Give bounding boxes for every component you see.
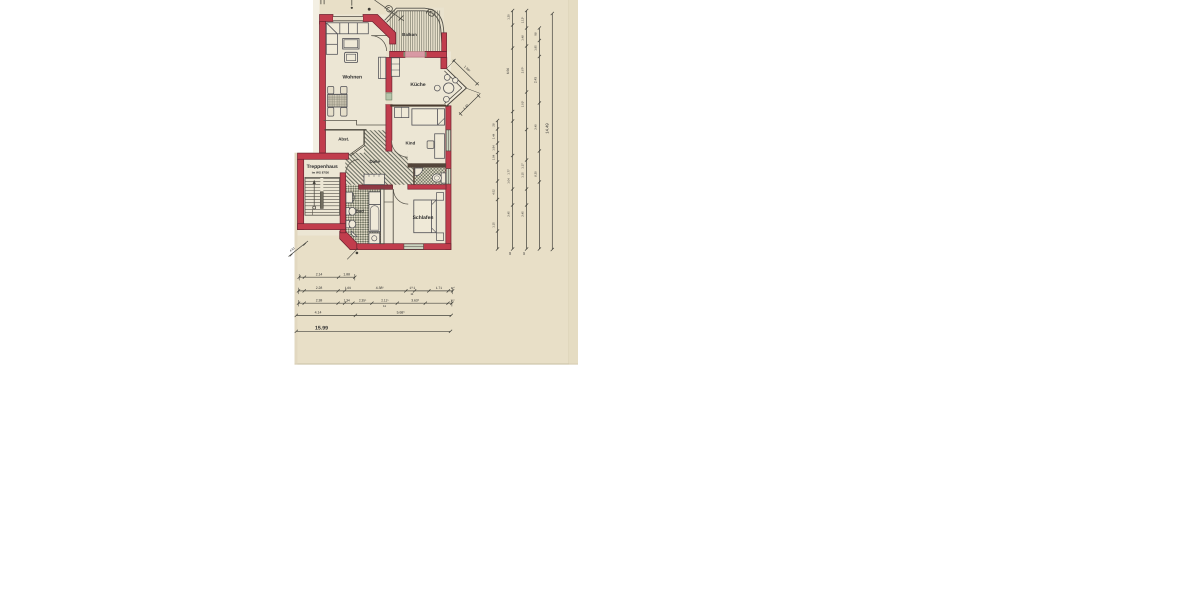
svg-text:3.45: 3.45 [507, 211, 511, 217]
svg-text:1.77: 1.77 [507, 169, 511, 175]
svg-text:3.45: 3.45 [521, 211, 525, 217]
svg-text:1.30: 1.30 [507, 14, 511, 20]
svg-text:1.17: 1.17 [521, 163, 525, 169]
svg-text:1.15: 1.15 [521, 172, 525, 178]
svg-text:15.99: 15.99 [315, 326, 328, 332]
svg-text:1.88: 1.88 [343, 273, 350, 277]
svg-text:1.01¹: 1.01¹ [521, 101, 525, 107]
svg-text:4.14: 4.14 [315, 311, 322, 315]
svg-text:1.13⁵: 1.13⁵ [521, 17, 525, 24]
svg-text:3.63⁵: 3.63⁵ [411, 299, 420, 303]
svg-text:1⁵¹1: 1⁵¹1 [409, 286, 415, 290]
svg-text:14.49: 14.49 [545, 123, 550, 134]
svg-text:Wohnen: Wohnen [342, 74, 362, 80]
svg-text:Küche: Küche [410, 82, 426, 88]
svg-text:5.68⁵: 5.68⁵ [397, 311, 406, 315]
svg-text:Kind: Kind [406, 141, 416, 146]
svg-text:1.04: 1.04 [507, 178, 511, 184]
svg-text:8.30: 8.30 [534, 171, 538, 177]
svg-text:36: 36 [522, 252, 526, 256]
svg-text:3.40: 3.40 [534, 124, 538, 130]
svg-text:1.44: 1.44 [492, 133, 496, 139]
svg-text:4.52: 4.52 [492, 189, 496, 195]
svg-text:2.45: 2.45 [534, 77, 538, 83]
svg-text:1.15: 1.15 [492, 222, 496, 228]
svg-text:11: 11 [410, 292, 413, 296]
svg-text:1.85: 1.85 [534, 45, 538, 51]
svg-text:6.56: 6.56 [506, 68, 510, 74]
svg-text:1.71: 1.71 [436, 286, 442, 290]
svg-text:1.48: 1.48 [521, 35, 525, 41]
svg-text:Bad: Bad [356, 208, 365, 213]
svg-text:2.38: 2.38 [316, 299, 323, 303]
svg-text:Schlafen: Schlafen [413, 215, 434, 221]
svg-text:28: 28 [492, 123, 496, 127]
svg-text:im WG 87/36: im WG 87/36 [312, 170, 330, 174]
svg-text:98: 98 [534, 32, 538, 36]
svg-text:2.35⁵: 2.35⁵ [359, 299, 367, 303]
svg-text:4.38⁵: 4.38⁵ [376, 286, 385, 290]
svg-text:1.34: 1.34 [344, 299, 350, 303]
svg-text:Abst.: Abst. [338, 136, 349, 141]
svg-text:38: 38 [508, 252, 512, 256]
svg-text:3.67⁵: 3.67⁵ [521, 67, 525, 74]
svg-text:2.28: 2.28 [316, 286, 323, 290]
svg-text:Treppenhaus: Treppenhaus [307, 164, 338, 170]
svg-text:11: 11 [383, 304, 386, 308]
svg-text:Diele: Diele [369, 159, 380, 164]
svg-text:1.04: 1.04 [492, 154, 496, 160]
svg-text:1.94: 1.94 [492, 145, 496, 151]
svg-text:1.09: 1.09 [345, 286, 351, 290]
svg-text:Balkon: Balkon [402, 32, 417, 37]
svg-text:2.14: 2.14 [316, 273, 323, 277]
svg-text:2.11⁵: 2.11⁵ [381, 299, 389, 303]
